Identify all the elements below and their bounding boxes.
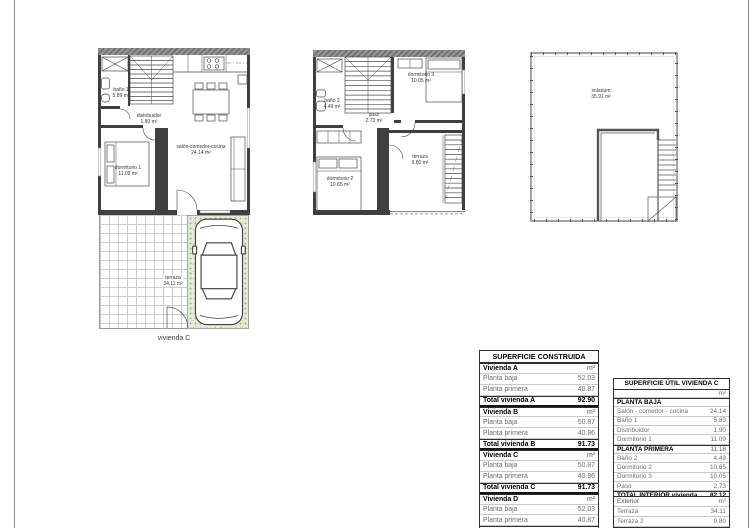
- table-row: m²: [614, 390, 729, 398]
- room-label-dormitorio2: dormitorio 2 10.65 m²: [327, 176, 353, 188]
- gate-door-arc: [98, 215, 250, 330]
- bed-icon: [105, 142, 149, 186]
- table-row: Vivienda Am²: [480, 363, 598, 374]
- room-label-dormitorio3: dormitorio 3 10.05 m²: [408, 72, 434, 84]
- room-label-distribuidor: distribuidor 1.90 m²: [137, 113, 161, 125]
- table-row: Terraza 29.80: [614, 517, 729, 527]
- table-row: Salón - comedor - cocina24.14: [614, 407, 729, 416]
- sheet-border-right: [748, 0, 749, 528]
- room-label-dormitorio1: dormitorio 1 11.09 m²: [115, 165, 141, 177]
- dining-table-icon: [193, 83, 229, 121]
- table-row: Baño 24.49: [614, 454, 729, 463]
- table-row: Terraza34.11: [614, 507, 729, 517]
- table-row: Distribuidor1.90: [614, 426, 729, 435]
- stairs-icon: [130, 56, 173, 104]
- sheet-border-left: [14, 0, 15, 528]
- table-row: Planta baja52.03: [480, 505, 598, 516]
- table-superficie-util: SUPERFICIE ÚTIL VIVIENDA C m² PLANTA BAJ…: [613, 378, 730, 502]
- table-row: Planta primera40.86: [480, 472, 598, 483]
- room-label-paso: paso 2.73 m²: [366, 112, 383, 124]
- table-row: Dormitorio 310.05: [614, 473, 729, 482]
- plan-caption: vivienda C: [98, 335, 250, 342]
- room-label-bano2: baño 2 4.49 m²: [324, 98, 341, 110]
- table-row: Dormitorio 111.09: [614, 435, 729, 444]
- table-title: SUPERFICIE CONSTRUIDA: [480, 351, 598, 363]
- table-row: PLANTA BAJA: [614, 398, 729, 407]
- room-label-terraza-pb: terraza 34.11 m²: [162, 275, 183, 287]
- room-label-solarium: solarium 35.91 m²: [591, 88, 611, 100]
- table-row: Baño 15.89: [614, 417, 729, 426]
- table-row: Dormitorio 210.65: [614, 463, 729, 472]
- exterior-stairs-icon: [443, 135, 462, 203]
- windows: [98, 108, 250, 213]
- room-label-salon: salón-comedor-cocina 24.14 m²: [176, 144, 225, 156]
- table-exterior: Exteriorm² Terraza34.11 Terraza 29.80: [613, 496, 730, 528]
- sofa-icon: [231, 137, 245, 201]
- table-row: Total vivienda C91.73: [480, 483, 598, 494]
- party-wall: [313, 50, 465, 57]
- table-row: Planta baja52.03: [480, 374, 598, 385]
- table-row: Planta primera40.87: [480, 385, 598, 396]
- walls: [98, 55, 250, 215]
- room-label-bano1: baño 1 5.89 m²: [113, 87, 130, 99]
- closet-icon: [102, 57, 128, 71]
- table-row: Planta baja50.87: [480, 417, 598, 428]
- patio-terraza: [98, 215, 250, 330]
- table-superficie-construida: SUPERFICIE CONSTRUIDA Vivienda Am² Plant…: [479, 350, 599, 528]
- table-row: Vivienda Bm²: [480, 407, 598, 418]
- floor-plan-planta-baja: [98, 48, 250, 215]
- closet-icon: [317, 59, 342, 72]
- table-row: Vivienda Cm²: [480, 450, 598, 461]
- roof-plan-solarium: [530, 52, 678, 222]
- table-row: Exteriorm²: [614, 497, 729, 507]
- floor-plan-planta-primera: [313, 50, 465, 215]
- bathroom-fixtures-icon: [102, 78, 110, 102]
- table-row: Vivienda Dm²: [480, 494, 598, 505]
- table-row: PLANTA PRIMERA11.18: [614, 445, 729, 454]
- parapet-inner-line: [535, 57, 674, 218]
- stairs-icon: [345, 57, 391, 113]
- table-row: Total vivienda B91.73: [480, 439, 598, 450]
- table-row: Planta baja50.87: [480, 461, 598, 472]
- table-title: SUPERFICIE ÚTIL VIVIENDA C: [614, 379, 729, 390]
- parapet-wall: [531, 53, 677, 221]
- table-row: Planta primera40.87: [480, 515, 598, 526]
- kitchen-counter-icon: [173, 55, 247, 84]
- party-wall: [98, 48, 250, 55]
- room-label-terraza-pp: terraza 9.80 m²: [412, 154, 429, 166]
- table-row: Planta primera40.86: [480, 428, 598, 439]
- table-row: Paso2.73: [614, 482, 729, 491]
- parapet-ticks: [531, 53, 677, 221]
- plan-sheet: baño 1 5.89 m² distribuidor 1.90 m² saló…: [0, 0, 756, 528]
- stairwell-void: [598, 130, 658, 221]
- table-row: Total vivienda A92.90: [480, 396, 598, 407]
- stairs-icon: [648, 140, 676, 221]
